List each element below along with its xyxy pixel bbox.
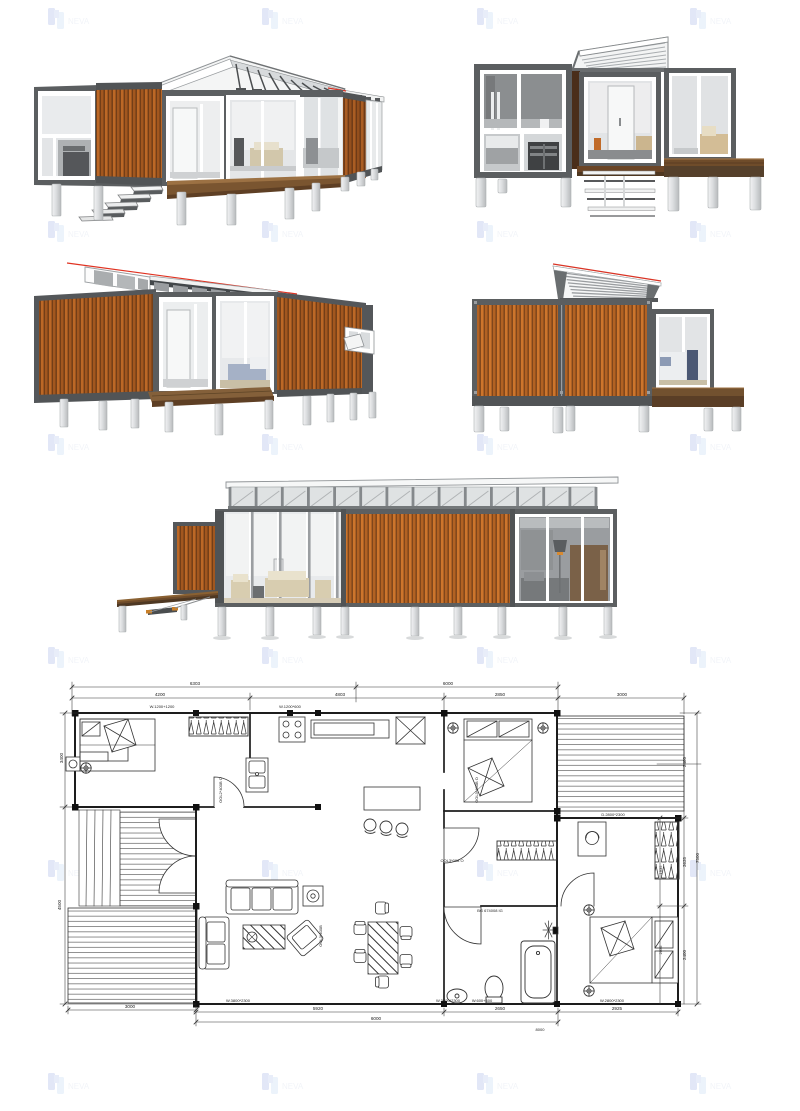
svg-text:BG 674008 IG: BG 674008 IG bbox=[477, 908, 503, 913]
svg-text:W.600+400: W.600+400 bbox=[472, 998, 493, 1003]
svg-text:3000: 3000 bbox=[125, 1004, 136, 1009]
svg-text:4500: 4500 bbox=[57, 899, 62, 910]
svg-text:W.2800*2300: W.2800*2300 bbox=[600, 998, 625, 1003]
svg-text:W.3800*2300: W.3800*2300 bbox=[436, 998, 461, 1003]
svg-text:6000: 6000 bbox=[371, 1016, 382, 1021]
svg-text:3400: 3400 bbox=[59, 752, 64, 763]
svg-text:2650: 2650 bbox=[495, 1006, 506, 1011]
svg-text:3000: 3000 bbox=[617, 692, 628, 697]
svg-text:6303: 6303 bbox=[190, 681, 201, 686]
svg-text:D.2800*2300: D.2800*2300 bbox=[601, 812, 625, 817]
svg-text:W.1200+1200: W.1200+1200 bbox=[150, 704, 176, 709]
svg-text:8000: 8000 bbox=[536, 1027, 546, 1032]
svg-text:1935: 1935 bbox=[658, 865, 663, 875]
svg-text:7500: 7500 bbox=[695, 852, 700, 863]
svg-text:2035: 2035 bbox=[658, 945, 663, 955]
svg-text:2400: 2400 bbox=[682, 949, 687, 960]
svg-text:3635: 3635 bbox=[682, 856, 687, 867]
svg-text:OOL3*400B: OOL3*400B bbox=[318, 925, 323, 947]
svg-text:2850: 2850 bbox=[495, 692, 506, 697]
svg-text:6000: 6000 bbox=[443, 681, 454, 686]
svg-text:W.1200*600: W.1200*600 bbox=[279, 704, 302, 709]
svg-text:2460: 2460 bbox=[682, 756, 687, 767]
svg-text:W.3800*2300: W.3800*2300 bbox=[226, 998, 251, 1003]
svg-text:5920: 5920 bbox=[313, 1006, 324, 1011]
svg-text:2925: 2925 bbox=[612, 1006, 623, 1011]
svg-text:OOL3*008 O: OOL3*008 O bbox=[440, 858, 463, 863]
svg-text:4803: 4803 bbox=[335, 692, 346, 697]
svg-text:OOL3*400B O: OOL3*400B O bbox=[474, 777, 479, 803]
svg-text:4200: 4200 bbox=[155, 692, 166, 697]
svg-text:OOL2*400B O: OOL2*400B O bbox=[218, 777, 223, 803]
